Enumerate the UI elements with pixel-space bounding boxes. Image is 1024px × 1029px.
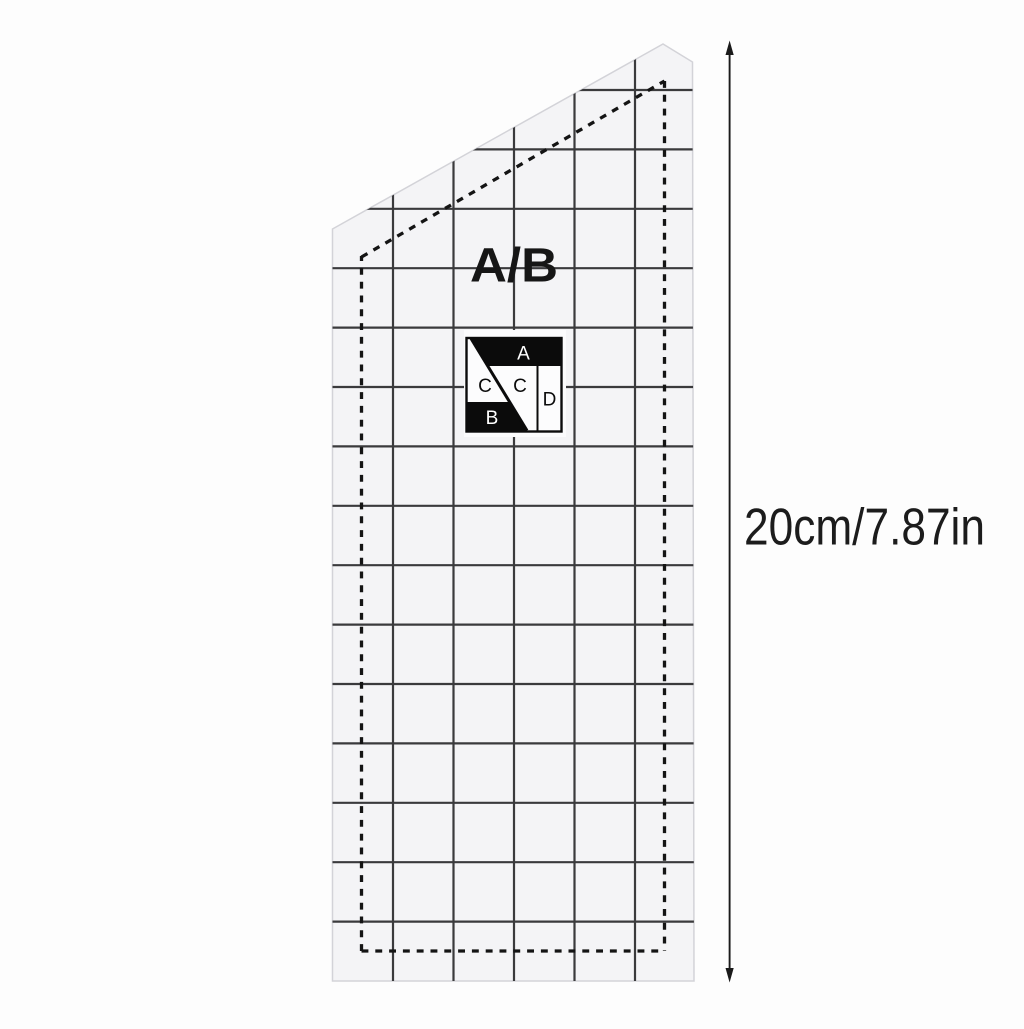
svg-text:B: B	[486, 408, 499, 429]
svg-text:20cm/7.87in: 20cm/7.87in	[744, 499, 985, 557]
svg-text:C: C	[478, 376, 492, 397]
svg-text:C: C	[513, 376, 527, 397]
svg-text:A/B: A/B	[470, 240, 558, 293]
svg-text:D: D	[543, 390, 557, 411]
svg-text:A: A	[517, 344, 530, 365]
